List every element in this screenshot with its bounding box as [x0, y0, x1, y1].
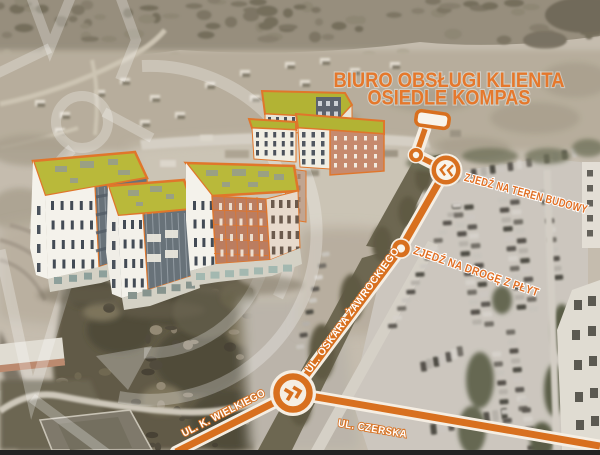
svg-text:OSIEDLE KOMPAS: OSIEDLE KOMPAS: [368, 87, 531, 110]
